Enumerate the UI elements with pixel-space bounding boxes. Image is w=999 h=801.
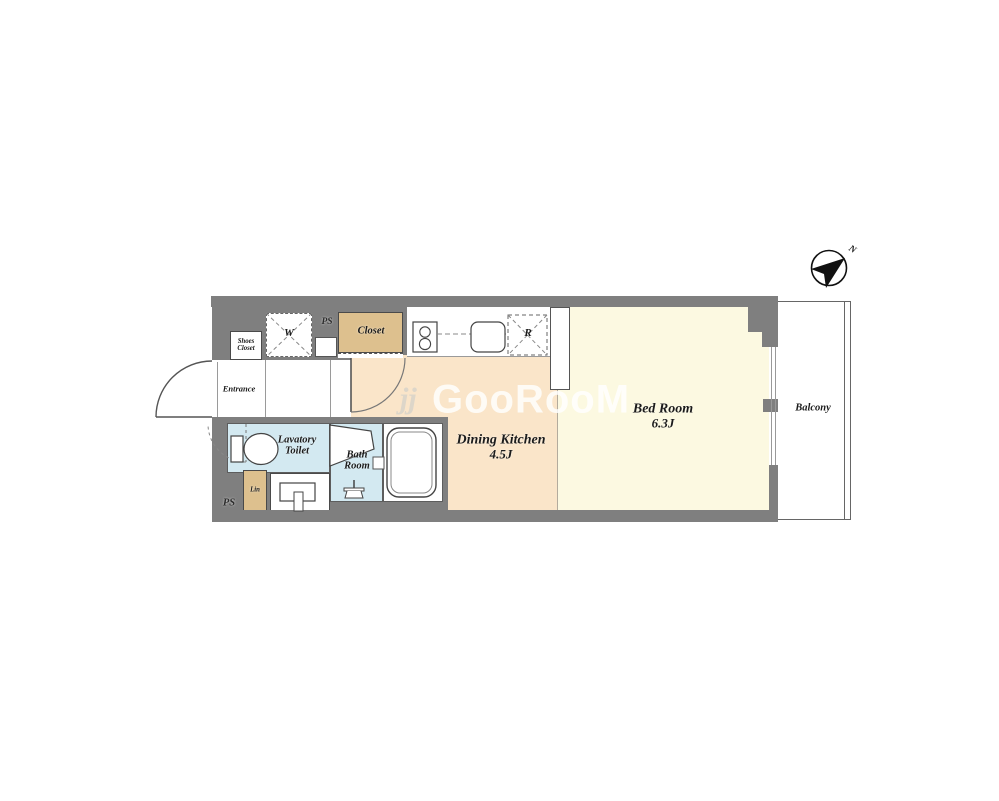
wall-corner-column-b	[762, 332, 778, 347]
compass-north-label: N	[846, 244, 857, 256]
balcony-label: Balcony	[795, 402, 831, 413]
linen-label: Lin	[250, 486, 260, 493]
entrance-step-line	[265, 360, 266, 417]
closet-label: Closet	[358, 325, 385, 336]
bathtub-area	[383, 423, 443, 502]
window-center-frame	[763, 399, 778, 412]
bed-room-label: Bed Room 6.3J	[633, 401, 693, 430]
shoes-closet-label: Shoes Closet	[237, 338, 254, 352]
balcony-railing-line	[844, 301, 845, 520]
watermark-icon: jj	[400, 382, 417, 416]
washer-label: W	[284, 328, 294, 340]
wall-top	[211, 296, 778, 307]
dining-kitchen-label: Dining Kitchen 4.5J	[456, 432, 545, 461]
watermark-text: GooRooM	[432, 378, 630, 423]
ps-top-label: PS	[321, 317, 332, 327]
closet-sliding-door	[338, 353, 403, 358]
fridge-label: R	[524, 328, 531, 340]
washbasin-room	[270, 473, 330, 512]
bath-room-label: Bath Room	[344, 450, 370, 473]
compass-north-arrow	[811, 258, 845, 288]
entrance-door-arc	[156, 361, 212, 417]
wall-corner-column-a	[748, 296, 778, 332]
floor-plan-image: jj GooRooM Shoes Closet W PS Closet R En…	[0, 0, 999, 801]
hall-floor-line	[330, 360, 331, 417]
wall-bottom	[212, 510, 778, 522]
entrance-door-frame-line	[217, 362, 218, 417]
ps-bottom-label: PS	[223, 497, 235, 508]
compass-circle	[812, 251, 847, 286]
lavatory-toilet-label: Lavatory Toilet	[278, 435, 317, 458]
pipe-space-box-top	[315, 337, 337, 357]
entrance-label: Entrance	[223, 384, 256, 393]
